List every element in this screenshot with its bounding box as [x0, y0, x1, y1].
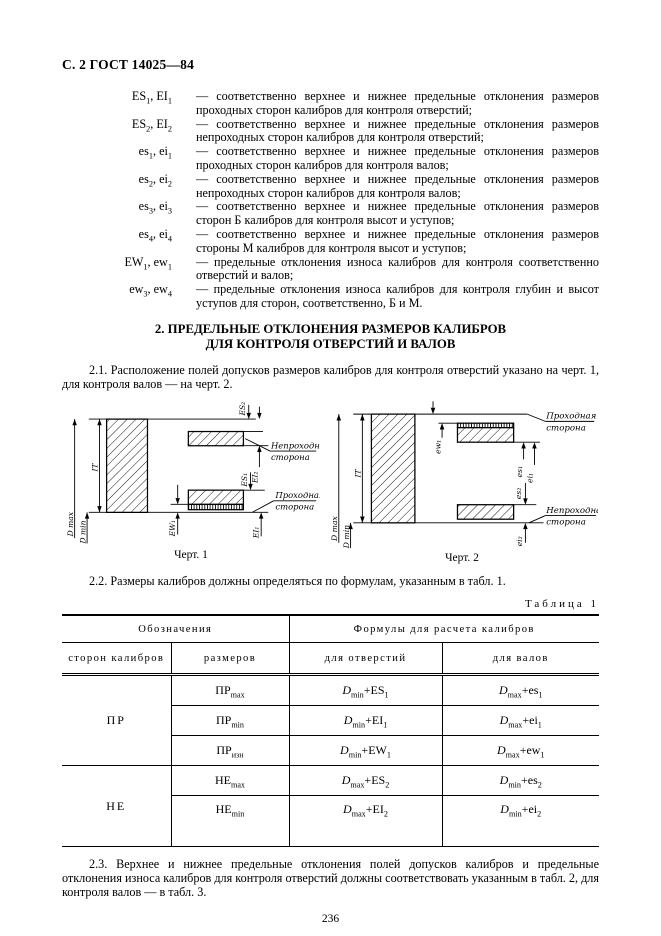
nogo-side-label-line2: сторона — [546, 517, 586, 527]
nogo-side-label-line1: Непроходная — [545, 505, 598, 515]
ei2-label: EI₂ — [251, 471, 260, 484]
shaft-tolerance-zone — [371, 414, 414, 523]
ei2-dimension: ei₂ — [515, 522, 528, 546]
ew1-label: EW₁ — [168, 520, 177, 537]
go-side-label-line2: сторона — [275, 501, 314, 511]
definition-term: ES2, EI2 — [62, 118, 172, 146]
section-title: 2. ПРЕДЕЛЬНЫЕ ОТКЛОНЕНИЯ РАЗМЕРОВ КАЛИБР… — [62, 322, 599, 353]
hole-formula-cell: Dmax+ES2 — [289, 766, 442, 796]
definition-item: ES2, EI2 — соответственно верхнее и нижн… — [62, 118, 599, 146]
formulas-table: Обозначения Формулы для расчета калибров… — [62, 614, 599, 847]
es2-label: es₂ — [514, 487, 523, 499]
section-title-line2: ДЛЯ КОНТРОЛЯ ОТВЕРСТИЙ И ВАЛОВ — [62, 337, 599, 353]
table-row: НЕ НЕmax Dmax+ES2 Dmin+es2 — [62, 766, 599, 796]
definition-term: es1, ei1 — [62, 145, 172, 173]
ei1-dimension: EI₁ — [252, 512, 264, 539]
definition-item: es3, ei3 — соответственно верхнее и нижн… — [62, 200, 599, 228]
definition-item: es4, ei4 — соответственно верхнее и нижн… — [62, 228, 599, 256]
go-side-callout: Проходная сторона — [527, 411, 596, 433]
header-sizes: размеров — [171, 643, 289, 675]
it-dimension: IT — [354, 414, 365, 523]
header-formulas: Формулы для расчета калибров — [289, 615, 599, 643]
size-cell: ПРmin — [171, 706, 289, 736]
side-pr: ПР — [62, 675, 171, 766]
it-dimension: IT — [91, 419, 102, 512]
it-label: IT — [354, 468, 363, 478]
hole-formula-cell: Dmin+EW1 — [289, 736, 442, 766]
header-designations: Обозначения — [62, 615, 289, 643]
definition-text: — соответственно верхнее и нижнее предел… — [196, 173, 599, 201]
paragraph-2-1: 2.1. Расположение полей допусков размеро… — [62, 364, 599, 392]
es1-dimension: ES₁ — [240, 472, 253, 490]
go-side-zone — [171, 490, 265, 510]
nogo-side-callout: Непроходная сторона — [245, 438, 320, 461]
shaft-formula-cell: Dmin+es2 — [442, 766, 599, 796]
dmin-label: D min — [78, 520, 87, 544]
es1-label: es₁ — [515, 466, 524, 478]
size-cell: ПРmax — [171, 675, 289, 706]
definition-text: — соответственно верхнее и нижнее предел… — [196, 200, 599, 228]
page-header: С. 2 ГОСТ 14025—84 — [62, 57, 599, 73]
dmax-label: D max — [66, 511, 75, 537]
hole-tolerance-zone — [107, 419, 148, 512]
definition-item: EW1, ew1 — предельные отклонения износа … — [62, 256, 599, 284]
go-side-label-line1: Проходная — [545, 411, 596, 421]
shaft-formula-cell: Dmax+ei1 — [442, 706, 599, 736]
wear-zone — [188, 504, 243, 509]
nogo-side-zone — [457, 504, 536, 518]
ei1-label: ei₁ — [526, 472, 535, 482]
hole-formula-cell: Dmin+ES1 — [289, 675, 442, 706]
figure-2: D max D min IT — [326, 396, 598, 564]
table-group-header-row: Обозначения Формулы для расчета калибров — [62, 615, 599, 643]
figure-1-caption: Черт. 1 — [174, 549, 208, 561]
it-label: IT — [91, 462, 100, 472]
go-side-label-line1: Проходная — [274, 490, 320, 500]
figure-1-drawing: D max D min IT — [62, 396, 320, 547]
paragraph-2-2: 2.2. Размеры калибров должны определятьс… — [62, 575, 599, 589]
gost-document-page: С. 2 ГОСТ 14025—84 ES1, EI1 — соответств… — [0, 0, 661, 936]
go-side-label-line2: сторона — [546, 423, 586, 433]
figure-2-drawing: D max D min IT — [326, 396, 598, 550]
ei2-label: ei₂ — [515, 536, 524, 546]
nogo-side-callout: Непроходная сторона — [529, 505, 598, 527]
hole-formula-cell: Dmax+EI2 — [289, 796, 442, 847]
es2-label: ES₂ — [238, 401, 247, 416]
figure-1: D max D min IT — [62, 396, 320, 561]
wear-zone — [457, 423, 513, 428]
ew1-label: ew₁ — [433, 439, 442, 453]
size-cell: ПРизн — [171, 736, 289, 766]
definition-item: ES1, EI1 — соответственно верхнее и нижн… — [62, 90, 599, 118]
dmin-label: D min — [342, 524, 351, 548]
go-side-callout: Проходная сторона — [252, 490, 320, 512]
size-cell: НЕmax — [171, 766, 289, 796]
shaft-formula-cell: Dmin+ei2 — [442, 796, 599, 847]
definition-item: es1, ei1 — соответственно верхнее и нижн… — [62, 145, 599, 173]
figures-row: D max D min IT — [62, 396, 599, 564]
section-title-line1: 2. ПРЕДЕЛЬНЫЕ ОТКЛОНЕНИЯ РАЗМЕРОВ КАЛИБР… — [62, 322, 599, 338]
definition-term: es3, ei3 — [62, 200, 172, 228]
table-row: ПР ПРmax Dmin+ES1 Dmax+es1 — [62, 675, 599, 706]
definition-text: — соответственно верхнее и нижнее предел… — [196, 145, 599, 173]
definition-text: — предельные отклонения износа калибров … — [196, 283, 599, 311]
definition-text: — соответственно верхнее и нижнее предел… — [196, 118, 599, 146]
figure-2-caption: Черт. 2 — [445, 552, 479, 564]
definition-term: es4, ei4 — [62, 228, 172, 256]
shaft-formula-cell: Dmax+ew1 — [442, 736, 599, 766]
ew1-dimension: EW₁ — [168, 484, 180, 537]
table-column-header-row: сторон калибров размеров для отверстий д… — [62, 643, 599, 675]
es1-label: ES₁ — [240, 472, 249, 487]
definition-text: — предельные отклонения износа калибров … — [196, 256, 599, 284]
header-for-shafts: для валов — [442, 643, 599, 675]
nogo-side-label-line1: Непроходная — [270, 440, 320, 450]
definition-term: EW1, ew1 — [62, 256, 172, 284]
dmin-dimension: D min — [342, 522, 353, 548]
definition-term: ES1, EI1 — [62, 90, 172, 118]
ew1-dimension: ew₁ — [431, 401, 445, 454]
shaft-formula-cell: Dmax+es1 — [442, 675, 599, 706]
page-number: 236 — [62, 913, 599, 925]
nogo-side-label-line2: сторона — [271, 452, 310, 462]
dmax-label: D max — [330, 515, 339, 541]
go-side-zone — [438, 423, 539, 442]
definition-term: es2, ei2 — [62, 173, 172, 201]
es2-dimension: ES₂ — [238, 401, 251, 418]
ei1-label: EI₁ — [252, 526, 261, 539]
nogo-side-zone — [188, 431, 268, 445]
header-for-holes: для отверстий — [289, 643, 442, 675]
dmin-dimension: D min — [78, 512, 89, 544]
definition-text: — соответственно верхнее и нижнее предел… — [196, 228, 599, 256]
es1-dimension: es₁ — [515, 442, 526, 477]
definition-term: ew3, ew4 — [62, 283, 172, 311]
hole-formula-cell: Dmin+EI1 — [289, 706, 442, 736]
dmax-dimension: D max — [66, 419, 77, 538]
definition-item: ew3, ew4 — предельные отклонения износа … — [62, 283, 599, 311]
table-label: Таблица 1 — [62, 598, 599, 610]
paragraph-2-3: 2.3. Верхнее и нижнее предельные отклоне… — [62, 858, 599, 900]
es2-dimension: es₂ — [514, 483, 528, 505]
size-cell: НЕmin — [171, 796, 289, 847]
definitions-list: ES1, EI1 — соответственно верхнее и нижн… — [62, 90, 599, 311]
ei1-dimension: ei₁ — [526, 442, 537, 483]
dmax-dimension: D max — [330, 414, 341, 543]
definition-text: — соответственно верхнее и нижнее предел… — [196, 90, 599, 118]
definition-item: es2, ei2 — соответственно верхнее и нижн… — [62, 173, 599, 201]
header-gauge-sides: сторон калибров — [62, 643, 171, 675]
side-ne: НЕ — [62, 766, 171, 847]
